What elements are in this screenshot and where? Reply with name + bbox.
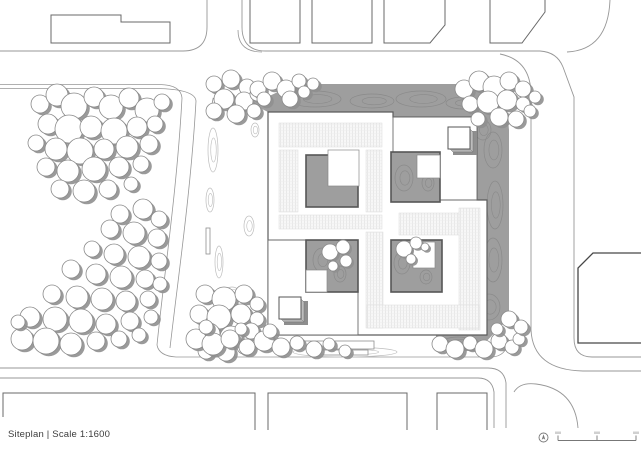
context-building-outline (490, 0, 545, 43)
roof-hatch (367, 305, 479, 328)
context-building-outline (250, 0, 300, 43)
tree (45, 138, 67, 160)
tree (151, 211, 167, 227)
skylight-cube (448, 127, 470, 149)
tree (290, 336, 304, 350)
tree (529, 91, 541, 103)
tree (148, 229, 166, 247)
tree (272, 338, 290, 356)
tree (515, 81, 531, 97)
tree (60, 333, 82, 355)
courtyard-notch (306, 270, 327, 292)
tree (109, 157, 129, 177)
tree (140, 291, 156, 307)
tree (406, 254, 416, 264)
tree (116, 136, 138, 158)
tree (247, 104, 261, 118)
tree (147, 116, 163, 132)
context-building-outline (268, 393, 407, 430)
tree (144, 310, 158, 324)
context-building-outline (51, 15, 170, 43)
tree (96, 314, 116, 334)
tree (61, 93, 87, 119)
tree (99, 180, 117, 198)
tree (508, 111, 524, 127)
tree (340, 255, 352, 267)
tree (497, 90, 517, 110)
tree (133, 199, 153, 219)
road-path (0, 378, 494, 428)
tree (235, 323, 247, 335)
tree (43, 285, 61, 303)
siteplan-svg (0, 0, 641, 450)
tree (239, 339, 255, 355)
tree (80, 116, 102, 138)
tree (199, 320, 213, 334)
tree (110, 266, 132, 288)
context-building-outline (437, 393, 487, 430)
courtyard-notch (417, 155, 440, 178)
context-building-outline (578, 253, 641, 343)
contour-line (217, 253, 221, 271)
road-path (540, 51, 641, 357)
tree (263, 324, 277, 338)
tree (136, 270, 154, 288)
contour-line (208, 193, 212, 206)
road-path (0, 368, 506, 428)
tree (432, 336, 448, 352)
scale-bar-tick-label (555, 432, 561, 435)
tree (82, 157, 106, 181)
scale-bar-tick-label (633, 432, 639, 435)
road-path (514, 384, 578, 428)
tree (153, 277, 167, 291)
roof-hatch (279, 123, 382, 147)
tree (91, 288, 113, 310)
tree (104, 244, 124, 264)
tree (151, 253, 167, 269)
north-needle (542, 434, 546, 439)
tree (128, 246, 150, 268)
tree (123, 222, 145, 244)
roof-hatch (399, 213, 461, 235)
siteplan-title: Siteplan | Scale 1:1600 (8, 429, 110, 440)
tree (140, 135, 158, 153)
tree (235, 285, 253, 303)
tree (28, 135, 44, 151)
tree (336, 240, 350, 254)
tree (43, 307, 67, 331)
tree (11, 328, 33, 350)
context-building-outline (384, 0, 445, 43)
tree (62, 260, 80, 278)
context-building-outline (312, 0, 372, 43)
tree (206, 103, 222, 119)
tree (227, 105, 245, 123)
tree (322, 244, 338, 260)
tree (132, 328, 146, 342)
context-building-outline (3, 393, 255, 430)
tree (514, 320, 528, 334)
tree (471, 112, 485, 126)
scale-bar (539, 432, 639, 443)
tree (116, 291, 136, 311)
roof-hatch (366, 150, 382, 212)
scale-bar-tick-label (594, 432, 600, 435)
tree (124, 177, 138, 191)
tree (86, 264, 106, 284)
tree (328, 261, 338, 271)
tree (250, 297, 264, 311)
tree (222, 70, 240, 88)
contour-line (211, 138, 217, 162)
tree (421, 243, 429, 251)
tree (127, 117, 147, 137)
tree (257, 92, 271, 106)
tree (66, 286, 88, 308)
tree (57, 160, 79, 182)
road-path (567, 0, 610, 52)
tree (306, 341, 322, 357)
contour-line (247, 221, 253, 232)
tree (490, 108, 508, 126)
tree (491, 323, 503, 335)
tree (101, 220, 119, 238)
tree (231, 304, 251, 324)
tree (462, 96, 478, 112)
contour-line (253, 126, 257, 134)
tree (73, 180, 95, 202)
tree (111, 331, 127, 347)
tree (410, 237, 422, 249)
tree (37, 158, 55, 176)
tree (475, 340, 493, 358)
tree (202, 333, 224, 355)
tree (339, 345, 351, 357)
skylight-cube (279, 297, 301, 319)
tree (446, 340, 464, 358)
tree (69, 309, 93, 333)
tree (51, 180, 69, 198)
tree (307, 78, 319, 90)
tree (111, 205, 129, 223)
tree (524, 105, 536, 117)
courtyard-notch (328, 150, 359, 186)
tree (87, 332, 105, 350)
roof-hatch (279, 150, 298, 212)
road-path (531, 330, 641, 371)
tree (84, 241, 100, 257)
tree (323, 338, 335, 350)
tree (196, 285, 214, 303)
siteplan-page: Siteplan | Scale 1:1600 (0, 0, 641, 450)
tree (11, 315, 25, 329)
roof-hatch (279, 215, 382, 229)
tree (282, 91, 298, 107)
site-furniture (206, 228, 210, 254)
tree (121, 312, 139, 330)
tree (154, 94, 170, 110)
tree (33, 328, 59, 354)
tree (133, 156, 149, 172)
tree (94, 139, 114, 159)
